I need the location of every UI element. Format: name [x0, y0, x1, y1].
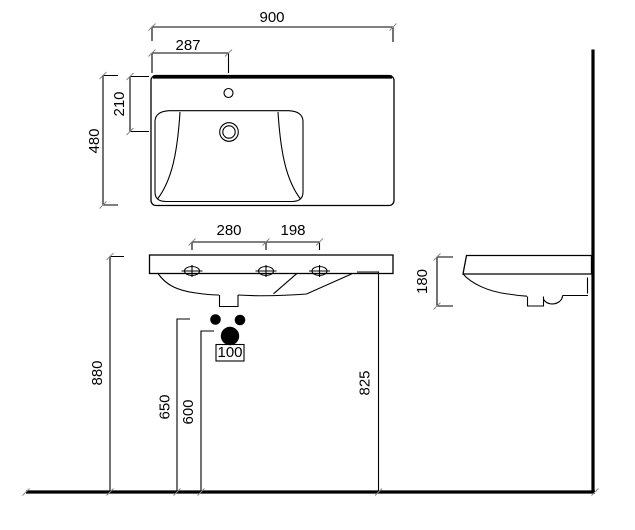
fixing-screw-middle: [256, 265, 277, 277]
dim-label-drain-offset: 210: [111, 91, 128, 116]
dim-line-880: [110, 257, 124, 493]
dim-label-apron-height: 180: [414, 269, 431, 294]
dim-line-287: [152, 53, 229, 73]
technical-drawing-page: 900 287 480 210: [0, 0, 635, 530]
washbasin-technical-drawing: 900 287 480 210: [0, 0, 635, 530]
dim-label-fixing-right: 198: [280, 222, 305, 239]
dim-line-600: [201, 331, 214, 492]
basin-slab-side: [463, 256, 592, 275]
bowl-underside-side: [463, 274, 527, 296]
bowl-rim-plan: [155, 111, 303, 202]
dim-line-280-198: [192, 242, 320, 250]
fixing-screw-right: [309, 265, 330, 277]
top-view: 900 287 480 210: [86, 9, 394, 206]
drain-inner-circle: [223, 126, 235, 138]
waste-stub-front: [220, 295, 239, 307]
dim-line-180: [437, 257, 453, 306]
bowl-underside-right: [238, 274, 352, 296]
side-view: 180: [414, 256, 592, 307]
dim-label-tap-offset: 287: [175, 37, 200, 54]
dim-label-fixing-left: 280: [216, 222, 241, 239]
dim-label-waste-height: 600: [180, 399, 197, 424]
supply-hole-right: [235, 315, 246, 326]
dim-label-rim-height: 825: [357, 370, 374, 395]
fixing-screw-left: [182, 265, 203, 277]
dim-label-overall-height: 880: [89, 360, 106, 385]
front-view: 100 280 198 880 650 600 825: [89, 222, 393, 492]
dim-label-waste-hole: 100: [217, 344, 242, 361]
bowl-wall-left: [158, 112, 181, 199]
dim-label-depth: 480: [86, 128, 103, 153]
bowl-crease-line: [274, 274, 297, 294]
supply-hole-left: [210, 314, 221, 325]
dimension-end-ticks: [23, 24, 599, 496]
dim-line-210: [130, 77, 149, 132]
bowl-underside-left: [158, 274, 219, 296]
dim-label-supply-height: 650: [157, 394, 174, 419]
basin-outline-plan: [151, 76, 394, 206]
trap-curve: [544, 296, 563, 304]
bowl-wall-right: [278, 112, 301, 199]
waste-stub-side: [528, 297, 544, 307]
dim-label-overall-width: 900: [259, 9, 284, 26]
waste-hole: [221, 327, 239, 345]
tap-hole: [224, 89, 233, 98]
back-skirt-lines: [563, 278, 589, 296]
